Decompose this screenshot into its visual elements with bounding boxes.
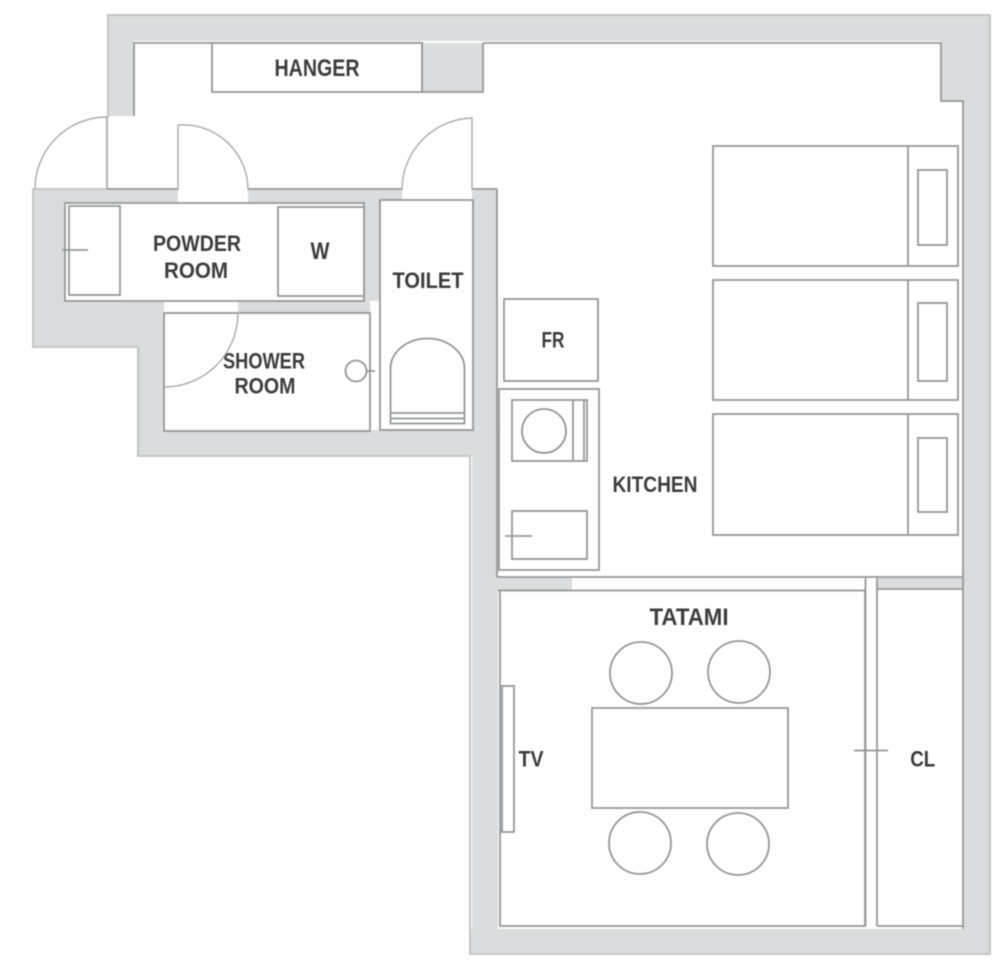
svg-text:SHOWER: SHOWER	[223, 349, 305, 374]
svg-text:TATAMI: TATAMI	[650, 604, 729, 631]
svg-text:W: W	[311, 238, 330, 265]
svg-text:TOILET: TOILET	[393, 268, 465, 293]
svg-text:KITCHEN: KITCHEN	[613, 472, 698, 497]
svg-text:TV: TV	[519, 747, 544, 772]
svg-text:HANGER: HANGER	[275, 55, 360, 82]
svg-text:CL: CL	[910, 746, 935, 771]
svg-text:ROOM: ROOM	[235, 374, 296, 399]
svg-text:FR: FR	[542, 328, 565, 353]
svg-text:POWDER: POWDER	[153, 231, 241, 256]
svg-text:ROOM: ROOM	[164, 258, 228, 283]
